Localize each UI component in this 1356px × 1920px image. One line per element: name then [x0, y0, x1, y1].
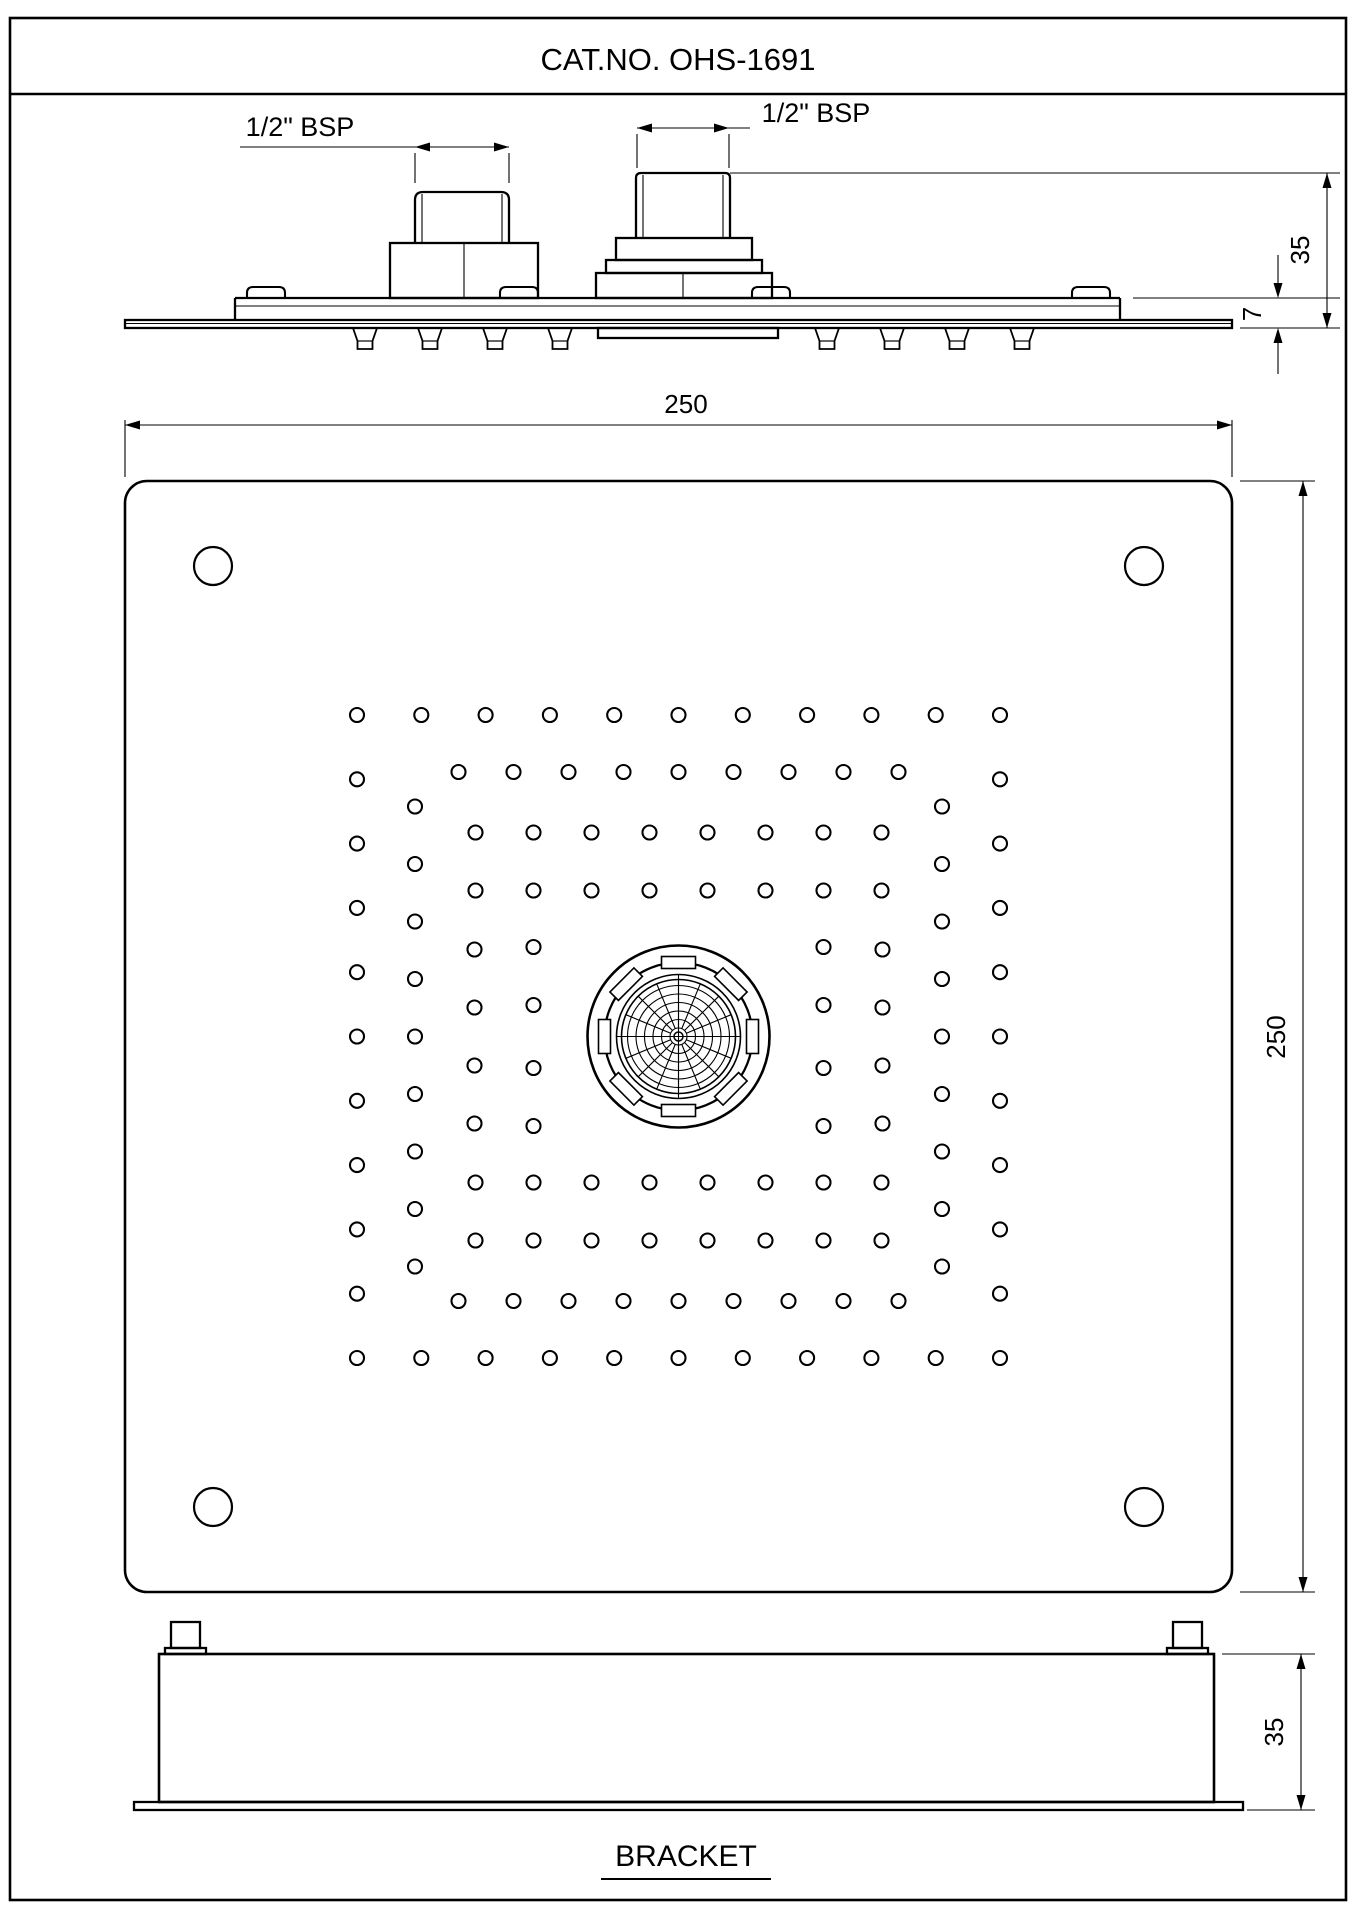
dim-arrow — [1323, 173, 1332, 188]
bracket-caption: BRACKET — [615, 1840, 757, 1873]
flange-step-2 — [606, 260, 762, 273]
left-inlet-connector — [390, 192, 538, 298]
technical-drawing-canvas: CAT.NO. OHS-1691 1/2" BSP 1/2" BSP — [0, 0, 1356, 1920]
drawing-page: CAT.NO. OHS-1691 1/2" BSP 1/2" BSP — [0, 0, 1356, 1920]
central-nozzle — [588, 946, 770, 1128]
bracket-height-dim: 35 — [1222, 1654, 1315, 1810]
dim-arrow — [415, 143, 430, 152]
side-shower-plate — [125, 320, 1232, 328]
flange-base — [596, 273, 772, 298]
dim-arrow — [1297, 1654, 1306, 1669]
dim-text-250-top: 250 — [664, 389, 707, 419]
bracket-pin-right — [1173, 1622, 1202, 1648]
side-height-dims: 35 7 — [730, 173, 1340, 374]
left-inlet-bsp-label: 1/2" BSP — [246, 112, 355, 142]
side-view: 1/2" BSP 1/2" BSP — [125, 98, 1340, 374]
dim-arrow — [1323, 313, 1332, 328]
dim-arrow — [1299, 1577, 1308, 1592]
dim-text-250-right: 250 — [1261, 1015, 1291, 1058]
bracket-view: 35 BRACKET — [134, 1622, 1315, 1879]
right-inlet-bsp-label: 1/2" BSP — [762, 98, 871, 128]
plate-height-dim: 250 — [1240, 481, 1315, 1592]
dim-arrow — [494, 143, 509, 152]
side-bracket-strip — [235, 298, 1120, 320]
dim-arrow — [1299, 481, 1308, 496]
dim-arrow — [1297, 1795, 1306, 1810]
plate-width-dim: 250 — [125, 389, 1232, 477]
mounting-clip-bumps — [247, 287, 1110, 298]
central-nozzle-side-profile — [598, 328, 778, 338]
bracket-body — [159, 1654, 1214, 1802]
dim-text-35: 35 — [1285, 236, 1315, 265]
plate-view: 250 250 — [125, 389, 1315, 1592]
dim-text-7: 7 — [1237, 307, 1267, 321]
dim-arrow — [1217, 421, 1232, 430]
dim-arrow — [1274, 328, 1283, 343]
bracket-pin-left — [171, 1622, 200, 1648]
dim-arrow — [1274, 283, 1283, 298]
flange-step-1 — [616, 238, 752, 260]
dim-arrow — [714, 124, 729, 133]
dim-arrow — [125, 421, 140, 430]
dim-arrow — [637, 124, 652, 133]
catalog-number-title: CAT.NO. OHS-1691 — [540, 42, 815, 77]
dim-text-35-bracket: 35 — [1259, 1718, 1289, 1747]
right-inlet-connector — [596, 173, 772, 298]
